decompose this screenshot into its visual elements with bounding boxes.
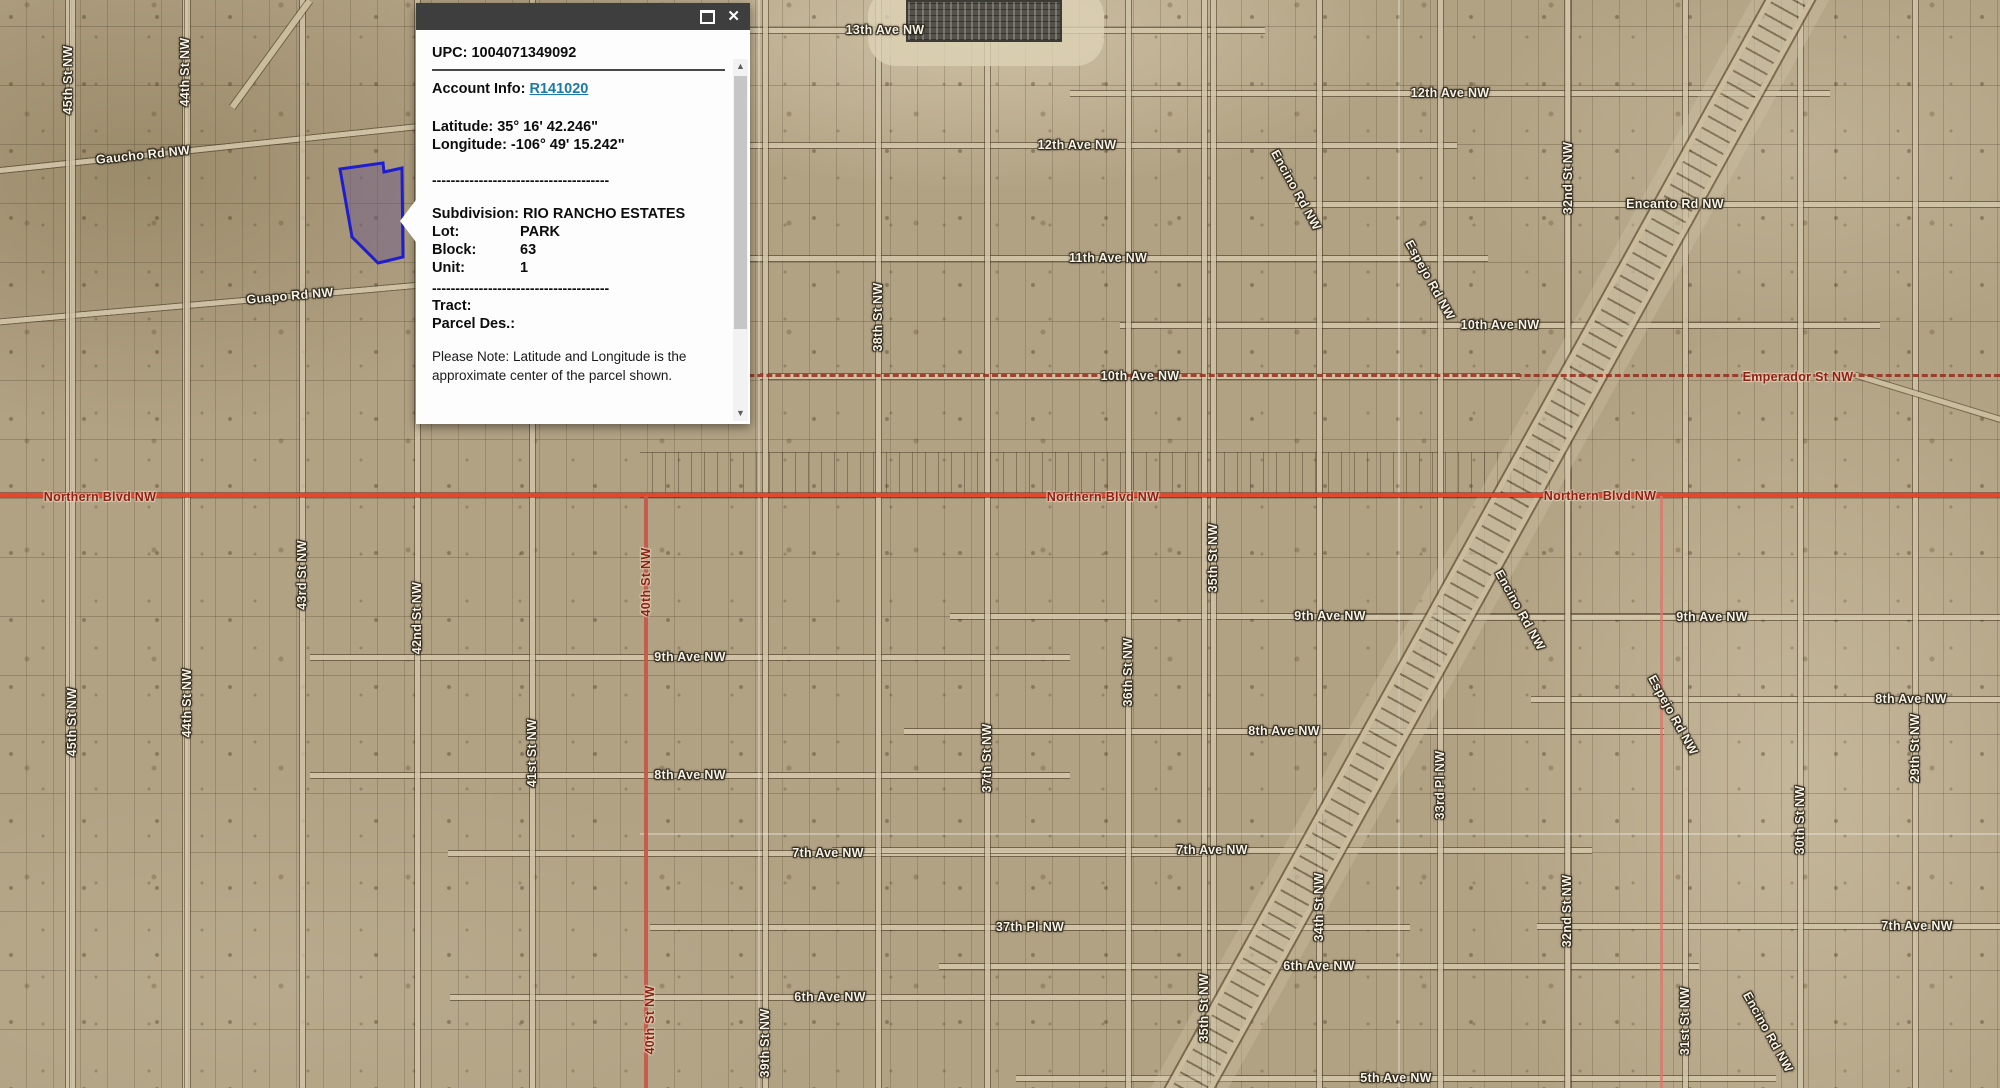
block-value: 63 bbox=[520, 241, 536, 259]
road-label-10th-ave-nw: 10th Ave NW bbox=[1101, 369, 1180, 383]
divider-rule bbox=[432, 69, 725, 71]
road-label-36th-st-nw: 36th St NW bbox=[1121, 638, 1135, 707]
road-label-43rd-st-nw: 43rd St NW bbox=[295, 540, 309, 610]
section-line bbox=[1398, 0, 1400, 1088]
road-label-encanto-rd-nw: Encanto Rd NW bbox=[1626, 197, 1724, 211]
road-label-northern-blvd-nw: Northern Blvd NW bbox=[1047, 490, 1159, 504]
road-label-8th-ave-nw: 8th Ave NW bbox=[1248, 724, 1320, 738]
road-label-6th-ave-nw: 6th Ave NW bbox=[1283, 959, 1355, 973]
road-label-9th-ave-nw: 9th Ave NW bbox=[1294, 609, 1366, 623]
northern-blvd-line bbox=[0, 493, 2000, 497]
road-label-40th-st-nw: 40th St NW bbox=[643, 986, 657, 1055]
road-label-35th-st-nw: 35th St NW bbox=[1197, 974, 1211, 1043]
map-canvas[interactable]: 13th Ave NW12th Ave NW12th Ave NW11th Av… bbox=[0, 0, 2000, 1088]
account-info-label: Account Info: bbox=[432, 81, 529, 97]
road-label-40th-st-nw: 40th St NW bbox=[639, 548, 653, 617]
road-label-32nd-st-nw: 32nd St NW bbox=[1561, 142, 1575, 214]
unit-label: Unit: bbox=[432, 259, 520, 277]
road-label-emperador-st-nw: Emperador St NW bbox=[1743, 370, 1854, 384]
road-label-5th-ave-nw: 5th Ave NW bbox=[1360, 1071, 1432, 1085]
road-label-39th-st-nw: 39th St NW bbox=[758, 1009, 772, 1078]
block-label: Block: bbox=[432, 241, 520, 259]
popup-content: UPC: 1004071349092 Account Info: R141020… bbox=[416, 30, 733, 424]
road-label-9th-ave-nw: 9th Ave NW bbox=[1676, 610, 1748, 624]
road-label-northern-blvd-nw: Northern Blvd NW bbox=[44, 490, 156, 504]
account-info-row: Account Info: R141020 bbox=[432, 80, 725, 98]
dashed-divider: -------------------------------------- bbox=[432, 171, 725, 189]
road-label-45th-st-nw: 45th St NW bbox=[61, 46, 75, 115]
road-label-7th-ave-nw: 7th Ave NW bbox=[792, 846, 864, 860]
road-label-9th-ave-nw: 9th Ave NW bbox=[654, 650, 726, 664]
road-label-29th-st-nw: 29th St NW bbox=[1908, 714, 1922, 783]
section-line bbox=[758, 0, 760, 1088]
close-icon[interactable]: ✕ bbox=[727, 9, 740, 24]
road-45th-st-nw bbox=[70, 0, 75, 1088]
road-label-8th-ave-nw: 8th Ave NW bbox=[1875, 692, 1947, 706]
solar-farm bbox=[906, 0, 1062, 42]
upc-value: UPC: 1004071349092 bbox=[432, 44, 725, 62]
road-label-34th-st-nw: 34th St NW bbox=[1312, 873, 1326, 942]
maximize-icon[interactable] bbox=[700, 10, 715, 24]
parcel-des-label: Parcel Des.: bbox=[432, 315, 725, 333]
boundary-line-vertical-east bbox=[1660, 496, 1663, 1088]
latitude-value: Latitude: 35° 16' 42.246" bbox=[432, 118, 725, 136]
road-label-35th-st-nw: 35th St NW bbox=[1206, 524, 1220, 593]
popup-callout-arrow bbox=[400, 200, 416, 242]
longitude-value: Longitude: -106° 49' 15.242" bbox=[432, 136, 725, 154]
road-label-44th-st-nw: 44th St NW bbox=[178, 38, 192, 107]
tract-label: Tract: bbox=[432, 297, 725, 315]
road-label-32nd-st-nw: 32nd St NW bbox=[1560, 875, 1574, 947]
road-label-42nd-st-nw: 42nd St NW bbox=[410, 582, 424, 654]
popup-scrollbar[interactable]: ▲ ▼ bbox=[733, 59, 748, 421]
popup-titlebar: ✕ bbox=[416, 3, 750, 30]
road-label-northern-blvd-nw: Northern Blvd NW bbox=[1544, 489, 1656, 503]
road-label-13th-ave-nw: 13th Ave NW bbox=[846, 23, 925, 37]
dashed-divider: -------------------------------------- bbox=[432, 279, 725, 297]
road-label-45th-st-nw: 45th St NW bbox=[65, 688, 79, 757]
road-label-30th-st-nw: 30th St NW bbox=[1793, 786, 1807, 855]
road-label-6th-ave-nw: 6th Ave NW bbox=[794, 990, 866, 1004]
road-38th-st-nw bbox=[876, 0, 881, 1088]
road-label-12th-ave-nw: 12th Ave NW bbox=[1038, 138, 1117, 152]
lot-label: Lot: bbox=[432, 223, 520, 241]
road-label-44th-st-nw: 44th St NW bbox=[180, 669, 194, 738]
road-label-31st-st-nw: 31st St NW bbox=[1678, 987, 1692, 1055]
road-label-11th-ave-nw: 11th Ave NW bbox=[1069, 251, 1147, 265]
road-39th-st-nw bbox=[763, 0, 768, 1088]
subdivision-value: Subdivision: RIO RANCHO ESTATES bbox=[432, 205, 725, 223]
road-label-10th-ave-nw: 10th Ave NW bbox=[1461, 318, 1540, 332]
unit-value: 1 bbox=[520, 259, 528, 277]
scroll-up-icon[interactable]: ▲ bbox=[733, 59, 748, 74]
road-label-38th-st-nw: 38th St NW bbox=[871, 283, 885, 352]
lot-row: Lot: PARK bbox=[432, 223, 725, 241]
road-label-7th-ave-nw: 7th Ave NW bbox=[1881, 919, 1953, 933]
scrollbar-thumb[interactable] bbox=[734, 76, 747, 329]
lot-value: PARK bbox=[520, 223, 560, 241]
road-33rd-pl-nw bbox=[1438, 0, 1443, 1088]
road-label-33rd-pl-nw: 33rd Pl NW bbox=[1433, 751, 1447, 820]
road-label-41st-st-nw: 41st St NW bbox=[525, 719, 539, 787]
popup-body: UPC: 1004071349092 Account Info: R141020… bbox=[416, 30, 750, 424]
road-label-8th-ave-nw: 8th Ave NW bbox=[654, 768, 726, 782]
road-30th-st-nw bbox=[1798, 0, 1803, 1088]
road-36th-st-nw bbox=[1126, 0, 1131, 1088]
note-text: Please Note: Latitude and Longitude is t… bbox=[432, 347, 725, 385]
road-44th-st-nw bbox=[185, 0, 190, 1088]
road-label-37th-st-nw: 37th St NW bbox=[980, 724, 994, 793]
road-label-37th-pl-nw: 37th Pl NW bbox=[996, 920, 1064, 934]
account-info-link[interactable]: R141020 bbox=[529, 81, 588, 97]
block-row: Block: 63 bbox=[432, 241, 725, 259]
road-label-12th-ave-nw: 12th Ave NW bbox=[1411, 86, 1490, 100]
parcel-info-popup: ✕ UPC: 1004071349092 Account Info: R1410… bbox=[416, 3, 750, 424]
road-37th-st-nw bbox=[985, 0, 990, 1088]
road-label-7th-ave-nw: 7th Ave NW bbox=[1176, 843, 1248, 857]
scroll-down-icon[interactable]: ▼ bbox=[733, 406, 748, 421]
unit-row: Unit: 1 bbox=[432, 259, 725, 277]
